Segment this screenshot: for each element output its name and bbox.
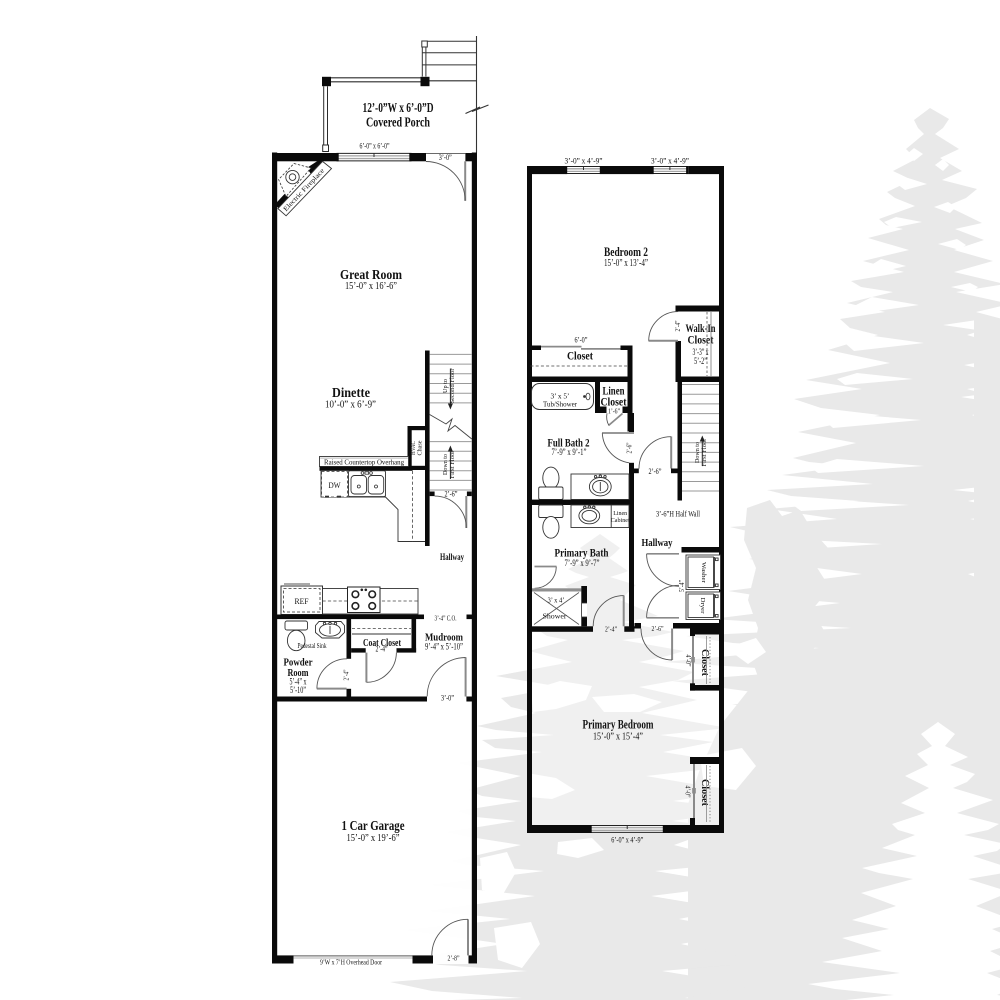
svg-text:Closet: Closet <box>567 351 593 363</box>
svg-text:Linen: Linen <box>613 510 627 517</box>
svg-text:Dinette: Dinette <box>332 385 370 400</box>
svg-text:15’-0” x 13’-4”: 15’-0” x 13’-4” <box>604 258 648 269</box>
svg-text:2’-6”: 2’-6” <box>652 624 664 633</box>
svg-text:3’-4” C.O.: 3’-4” C.O. <box>435 613 457 622</box>
svg-text:Down to: Down to <box>442 453 449 475</box>
svg-text:Pedestal Sink: Pedestal Sink <box>298 641 327 650</box>
svg-text:Closet: Closet <box>699 649 710 676</box>
svg-text:Hallway: Hallway <box>440 553 464 563</box>
svg-text:1 Car Garage: 1 Car Garage <box>342 818 405 833</box>
svg-text:Dryer: Dryer <box>699 598 706 615</box>
svg-text:4’-0”: 4’-0” <box>684 655 692 667</box>
svg-text:15’-0” x 19’-6”: 15’-0” x 19’-6” <box>347 833 400 844</box>
svg-text:9’-4” x 5’-10”: 9’-4” x 5’-10” <box>425 643 463 653</box>
svg-text:First Floor: First Floor <box>701 438 708 467</box>
svg-text:3’-0” x 4’-9”: 3’-0” x 4’-9” <box>651 157 689 166</box>
svg-text:DW: DW <box>329 481 341 490</box>
svg-text:Bedroom 2: Bedroom 2 <box>604 245 648 259</box>
svg-text:2’-8”: 2’-8” <box>448 954 460 963</box>
svg-text:5’-2”: 5’-2” <box>694 356 707 366</box>
svg-text:2’-6”: 2’-6” <box>445 489 458 498</box>
svg-text:4’-0”: 4’-0” <box>684 786 692 798</box>
svg-text:5’-10”: 5’-10” <box>290 686 306 696</box>
svg-text:2’-4”: 2’-4” <box>674 321 682 332</box>
svg-text:Closet: Closet <box>699 779 710 806</box>
svg-text:12’-0”W x 6’-0”D: 12’-0”W x 6’-0”D <box>363 100 434 115</box>
svg-text:Primary Bedroom: Primary Bedroom <box>583 717 654 732</box>
svg-text:Great Room: Great Room <box>340 267 403 282</box>
svg-text:Closet: Closet <box>688 335 714 347</box>
svg-text:3’ x 5’: 3’ x 5’ <box>551 393 570 401</box>
svg-text:Primary Bath: Primary Bath <box>555 546 609 560</box>
svg-text:2’-4”: 2’-4” <box>605 624 617 633</box>
svg-text:2’-6”: 2’-6” <box>649 467 662 476</box>
svg-text:10’-0” x 6’-9”: 10’-0” x 6’-9” <box>325 400 376 411</box>
svg-text:Cabinet: Cabinet <box>611 517 630 524</box>
svg-text:7’-9” x 9’-7”: 7’-9” x 9’-7” <box>565 559 600 569</box>
svg-text:Shower: Shower <box>543 612 568 621</box>
svg-text:Tub/Shower: Tub/Shower <box>543 401 578 409</box>
svg-text:7’-9” x 9’-1”: 7’-9” x 9’-1” <box>552 448 587 458</box>
svg-text:15’-0” x 16’-6”: 15’-0” x 16’-6” <box>345 281 397 292</box>
svg-text:3’ x 4’: 3’ x 4’ <box>548 598 565 605</box>
svg-text:Hallway: Hallway <box>642 537 673 549</box>
svg-text:Down to: Down to <box>694 441 701 463</box>
svg-text:Raised Countertop Overhang: Raised Countertop Overhang <box>324 459 404 467</box>
svg-text:6’-0”: 6’-0” <box>575 336 588 345</box>
svg-text:6’-0” x 6’-0”: 6’-0” x 6’-0” <box>360 142 390 151</box>
svg-text:15’-0” x 15’-4”: 15’-0” x 15’-4” <box>593 732 643 743</box>
svg-text:2’-4”: 2’-4” <box>376 644 388 653</box>
svg-text:5’-4”: 5’-4” <box>678 580 686 592</box>
svg-text:Second Floor: Second Floor <box>449 368 456 404</box>
svg-text:3’-0” x 4’-9”: 3’-0” x 4’-9” <box>565 157 603 166</box>
svg-text:3’-0”: 3’-0” <box>441 694 454 703</box>
svg-text:3’-0”: 3’-0” <box>439 153 452 162</box>
svg-text:2’-6”: 2’-6” <box>626 443 634 454</box>
svg-text:9’W x 7’H Overhead Door: 9’W x 7’H Overhead Door <box>320 958 382 967</box>
svg-text:1’-6”: 1’-6” <box>608 406 620 415</box>
svg-text:Chase: Chase <box>417 440 424 455</box>
svg-text:2’-4”: 2’-4” <box>342 670 350 681</box>
svg-text:Washer: Washer <box>700 562 707 584</box>
svg-text:3’-6”H Half Wall: 3’-6”H Half Wall <box>656 509 700 519</box>
svg-text:Up to: Up to <box>442 378 449 393</box>
svg-text:First Floor: First Floor <box>449 450 456 479</box>
svg-text:6’-0” x 4’-9”: 6’-0” x 4’-9” <box>611 836 643 845</box>
svg-text:REF: REF <box>295 597 310 606</box>
svg-text:Covered Porch: Covered Porch <box>366 115 430 130</box>
